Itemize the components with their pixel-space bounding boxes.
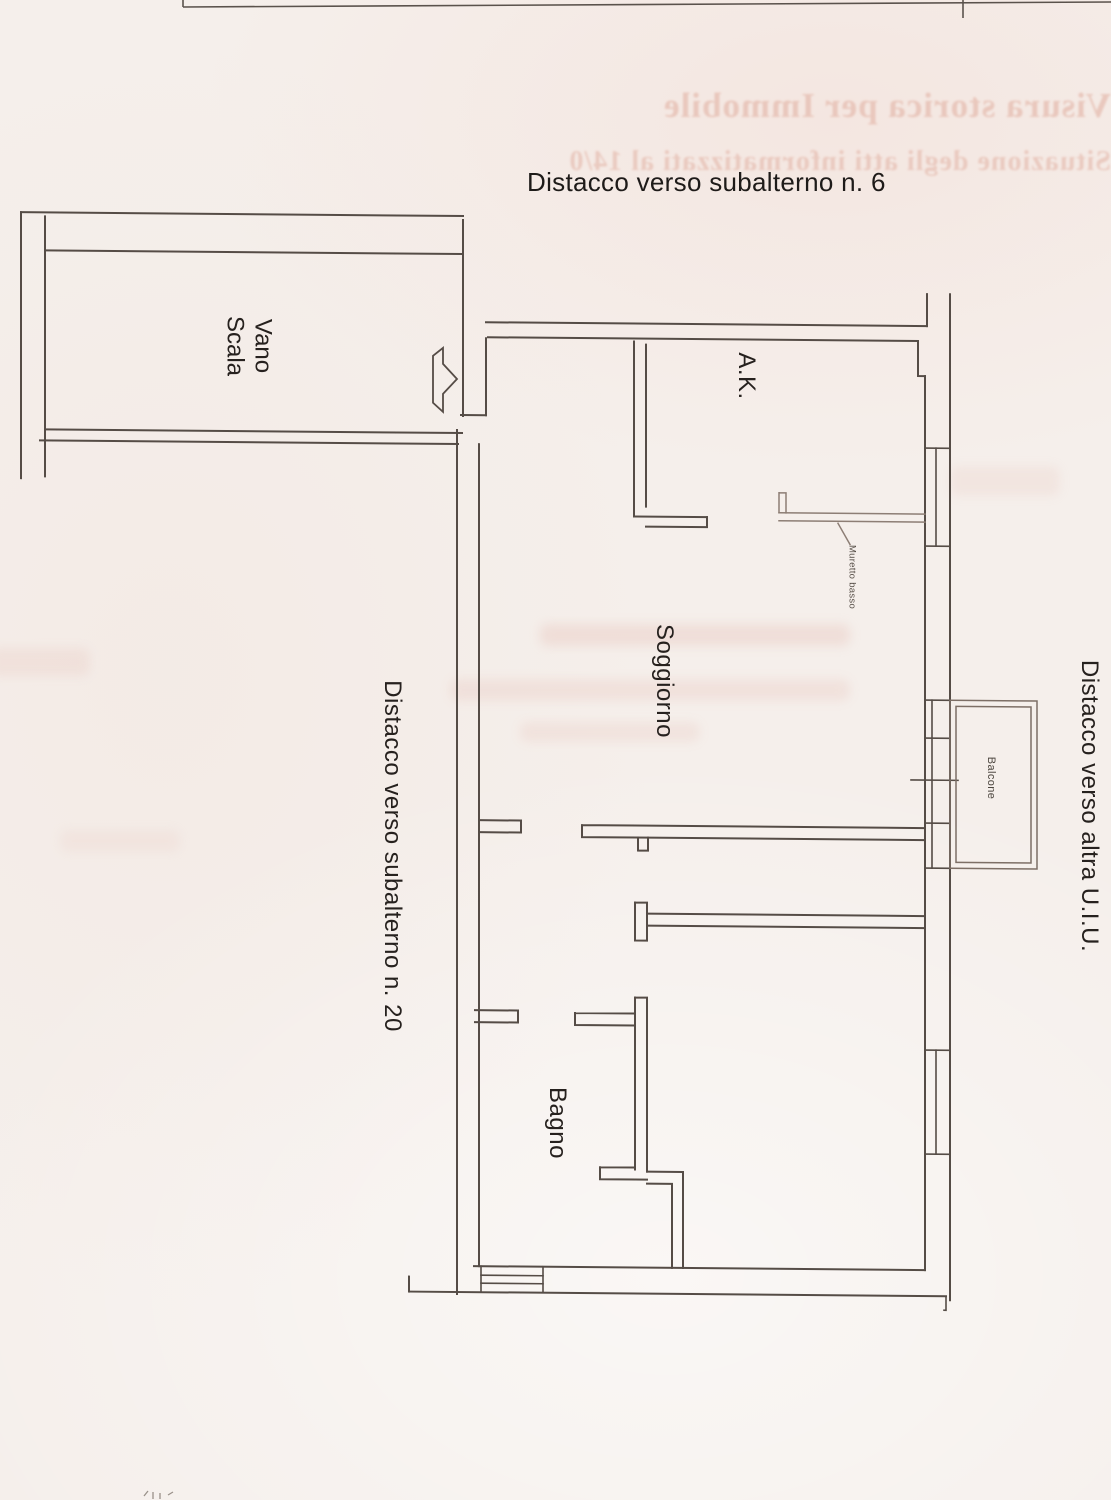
floor-plan-svg [0, 0, 1111, 1500]
hallway-partition-walls [479, 820, 925, 853]
bottom-left-mark [144, 1491, 173, 1499]
room-label-ak: A.K. [732, 352, 760, 399]
entry-direction-arrow-icon [433, 348, 457, 412]
window-right-lower [925, 1050, 950, 1154]
ak-partition-walls [634, 342, 707, 528]
bagno-walls [475, 996, 683, 1268]
annotation-distacco-subalterno-20: Distacco verso subalterno n. 20 [378, 680, 406, 1032]
scanned-floor-plan-page: Visura storica per Immobile Situazione d… [0, 0, 1111, 1500]
muretto-basso-leader-line [838, 523, 850, 544]
apartment-outer-walls [409, 290, 950, 1311]
annotation-muretto-basso: Muretto basso [847, 545, 858, 609]
entry-door-walls [461, 338, 486, 415]
room-label-vano-scala: Vano Scala [221, 316, 276, 376]
plan-linework [21, 212, 1037, 1311]
muretto-basso-wall [779, 493, 925, 545]
room-label-bagno: Bagno [543, 1087, 571, 1159]
window-bottom-wall [481, 1266, 543, 1293]
scan-artifacts [144, 0, 1111, 1499]
t-partition-walls [635, 903, 925, 944]
room-label-balcone: Balcone [985, 757, 997, 800]
room-label-vano-scala-line1: Vano [249, 316, 277, 376]
top-edge-line [183, 2, 1111, 7]
room-label-soggiorno: Soggiorno [650, 624, 678, 738]
room-label-vano-scala-line2: Scala [221, 316, 249, 376]
annotation-distacco-altra-uiu: Distacco verso altra U.I.U. [1075, 660, 1103, 952]
window-right-upper [925, 448, 950, 546]
